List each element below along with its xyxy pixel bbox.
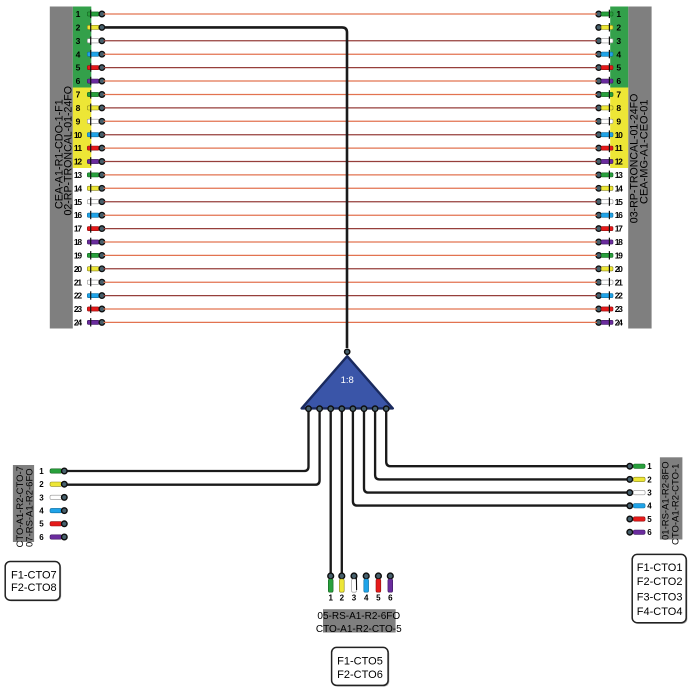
- svg-text:F1-CTO7: F1-CTO7: [11, 570, 57, 582]
- svg-text:5: 5: [616, 63, 621, 73]
- svg-text:1:8: 1:8: [341, 375, 354, 386]
- svg-text:5: 5: [76, 63, 81, 73]
- svg-text:12: 12: [74, 157, 82, 167]
- svg-text:11: 11: [615, 143, 623, 153]
- svg-text:21: 21: [74, 277, 82, 287]
- svg-text:F1-CTO5: F1-CTO5: [337, 655, 383, 667]
- svg-text:4: 4: [39, 507, 44, 516]
- svg-text:16: 16: [74, 210, 82, 220]
- svg-text:6: 6: [616, 76, 621, 86]
- svg-text:1: 1: [39, 467, 44, 476]
- svg-text:15: 15: [615, 197, 623, 207]
- svg-text:17: 17: [74, 224, 82, 234]
- svg-text:14: 14: [615, 183, 623, 193]
- svg-text:2: 2: [76, 23, 81, 33]
- svg-text:15: 15: [74, 197, 82, 207]
- svg-text:24: 24: [74, 318, 82, 328]
- svg-text:9: 9: [616, 116, 621, 126]
- svg-text:23: 23: [615, 304, 623, 314]
- svg-text:F2-CTO6: F2-CTO6: [337, 669, 383, 681]
- svg-text:1: 1: [616, 9, 621, 19]
- svg-text:F2-CTO8: F2-CTO8: [11, 582, 57, 594]
- svg-text:8: 8: [76, 103, 81, 113]
- svg-text:10: 10: [74, 130, 82, 140]
- svg-text:1: 1: [328, 594, 333, 603]
- svg-text:4: 4: [616, 49, 621, 59]
- svg-text:22: 22: [615, 291, 623, 301]
- svg-text:9: 9: [76, 116, 81, 126]
- svg-text:20: 20: [74, 264, 82, 274]
- svg-text:4: 4: [647, 502, 652, 511]
- svg-text:CEA-MG-A1-CEO-01: CEA-MG-A1-CEO-01: [639, 99, 651, 204]
- svg-text:6: 6: [647, 528, 652, 537]
- svg-text:12: 12: [615, 157, 623, 167]
- svg-text:21: 21: [615, 277, 623, 287]
- svg-text:F4-CTO4: F4-CTO4: [637, 606, 683, 618]
- svg-text:10: 10: [615, 130, 623, 140]
- svg-text:17: 17: [615, 224, 623, 234]
- svg-text:F1-CTO1: F1-CTO1: [637, 562, 683, 574]
- svg-text:6: 6: [76, 76, 81, 86]
- svg-text:5: 5: [39, 520, 44, 529]
- svg-text:3: 3: [39, 493, 44, 502]
- svg-text:1: 1: [647, 462, 652, 471]
- svg-text:CTO-A1-R2-CTO-5: CTO-A1-R2-CTO-5: [316, 624, 402, 635]
- svg-text:F3-CTO3: F3-CTO3: [637, 592, 683, 604]
- svg-text:14: 14: [74, 183, 82, 193]
- svg-text:4: 4: [364, 594, 369, 603]
- svg-text:18: 18: [74, 237, 82, 247]
- svg-text:6: 6: [39, 533, 44, 542]
- svg-text:11: 11: [74, 143, 82, 153]
- svg-text:13: 13: [615, 170, 623, 180]
- svg-text:16: 16: [615, 210, 623, 220]
- svg-text:13: 13: [74, 170, 82, 180]
- svg-text:2: 2: [647, 475, 652, 484]
- svg-text:05-RS-A1-R2-6FO: 05-RS-A1-R2-6FO: [317, 611, 400, 622]
- svg-text:2: 2: [340, 594, 345, 603]
- svg-text:CTO-A1-R2-CTO-1: CTO-A1-R2-CTO-1: [671, 464, 682, 545]
- svg-text:3: 3: [647, 489, 652, 498]
- svg-text:5: 5: [376, 594, 381, 603]
- svg-text:6: 6: [388, 594, 393, 603]
- svg-text:18: 18: [615, 237, 623, 247]
- svg-text:7: 7: [616, 90, 621, 100]
- svg-text:23: 23: [74, 304, 82, 314]
- svg-text:5: 5: [647, 515, 652, 524]
- svg-text:3: 3: [616, 36, 621, 46]
- svg-text:19: 19: [74, 251, 82, 261]
- svg-text:8: 8: [616, 103, 621, 113]
- svg-text:3: 3: [76, 36, 81, 46]
- svg-text:07-RS-A1-R2-6FO: 07-RS-A1-R2-6FO: [25, 468, 36, 547]
- svg-text:2: 2: [616, 23, 621, 33]
- svg-text:7: 7: [76, 90, 81, 100]
- svg-text:22: 22: [74, 291, 82, 301]
- svg-text:1: 1: [76, 9, 81, 19]
- svg-text:4: 4: [76, 49, 81, 59]
- svg-text:19: 19: [615, 251, 623, 261]
- svg-text:3: 3: [352, 594, 357, 603]
- svg-text:F2-CTO2: F2-CTO2: [637, 576, 683, 588]
- svg-text:24: 24: [615, 318, 623, 328]
- svg-text:20: 20: [615, 264, 623, 274]
- svg-text:2: 2: [39, 480, 44, 489]
- svg-text:02-RP-TRONCAL-01-24FO: 02-RP-TRONCAL-01-24FO: [63, 86, 75, 216]
